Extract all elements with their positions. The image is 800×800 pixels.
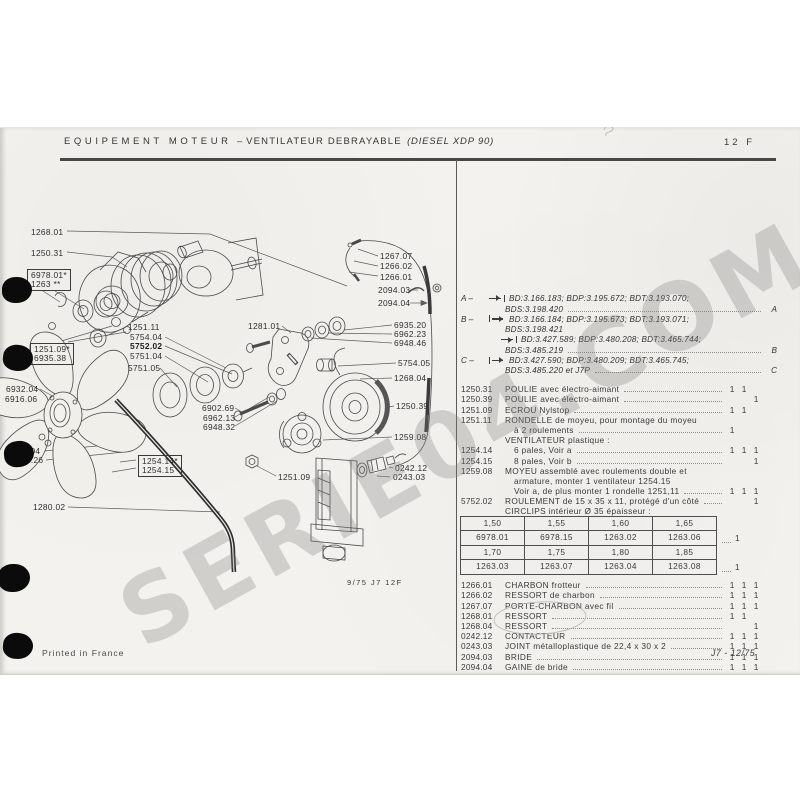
- part-number-label: 6932.04: [6, 385, 38, 394]
- part-number-text: 1263 **: [31, 280, 67, 289]
- part-number-label: 5751.05: [128, 364, 160, 373]
- part-number-label: 1250.31: [31, 249, 63, 258]
- paper-sheet: EQUIPEMENT MOTEUR – VENTILATEUR DEBRAYAB…: [0, 127, 800, 674]
- part-number-label: 5754.05: [398, 359, 430, 368]
- part-number-label: 6916.06: [5, 395, 37, 404]
- part-number-label: 5751.04: [130, 352, 162, 361]
- part-number-label: 1267.07: [380, 252, 412, 261]
- part-number-label: 0243.03: [393, 473, 425, 482]
- part-number-label: 1251.09*6935.38: [30, 343, 74, 365]
- part-number-label: 1266.02: [380, 262, 412, 271]
- part-number-label: 6978.01*1263 **: [27, 269, 71, 291]
- part-number-label: 1251.11: [128, 323, 160, 332]
- part-number-label: 1250.39: [396, 402, 428, 411]
- part-number-label: 2094.04: [378, 299, 410, 308]
- part-number-label: 6948.32: [203, 423, 235, 432]
- part-number-label: 1268.04: [394, 374, 426, 383]
- part-number-label: 1259.08: [394, 433, 426, 442]
- part-number-text: 6935.38: [34, 354, 70, 363]
- part-number-label: 1268.01: [31, 228, 63, 237]
- part-number-label: 6948.46: [394, 339, 426, 348]
- part-number-label: 1266.01: [380, 273, 412, 282]
- part-number-label: 1254.14*1254.15: [138, 455, 182, 477]
- part-number-label: 6902.69: [202, 404, 234, 413]
- part-number-label: 1280.02: [33, 503, 65, 512]
- part-number-label: 2094.03: [378, 286, 410, 295]
- diagram-labels: 1268.011250.316978.01*1263 **1251.09*693…: [0, 127, 800, 674]
- part-number-label: 1251.09: [278, 473, 310, 482]
- part-number-text: 1254.15: [142, 466, 178, 475]
- part-number-label: 1281.01: [248, 322, 280, 331]
- part-number-label: 5752.02: [130, 342, 162, 351]
- scanned-parts-catalog-page: EQUIPEMENT MOTEUR – VENTILATEUR DEBRAYAB…: [0, 0, 800, 800]
